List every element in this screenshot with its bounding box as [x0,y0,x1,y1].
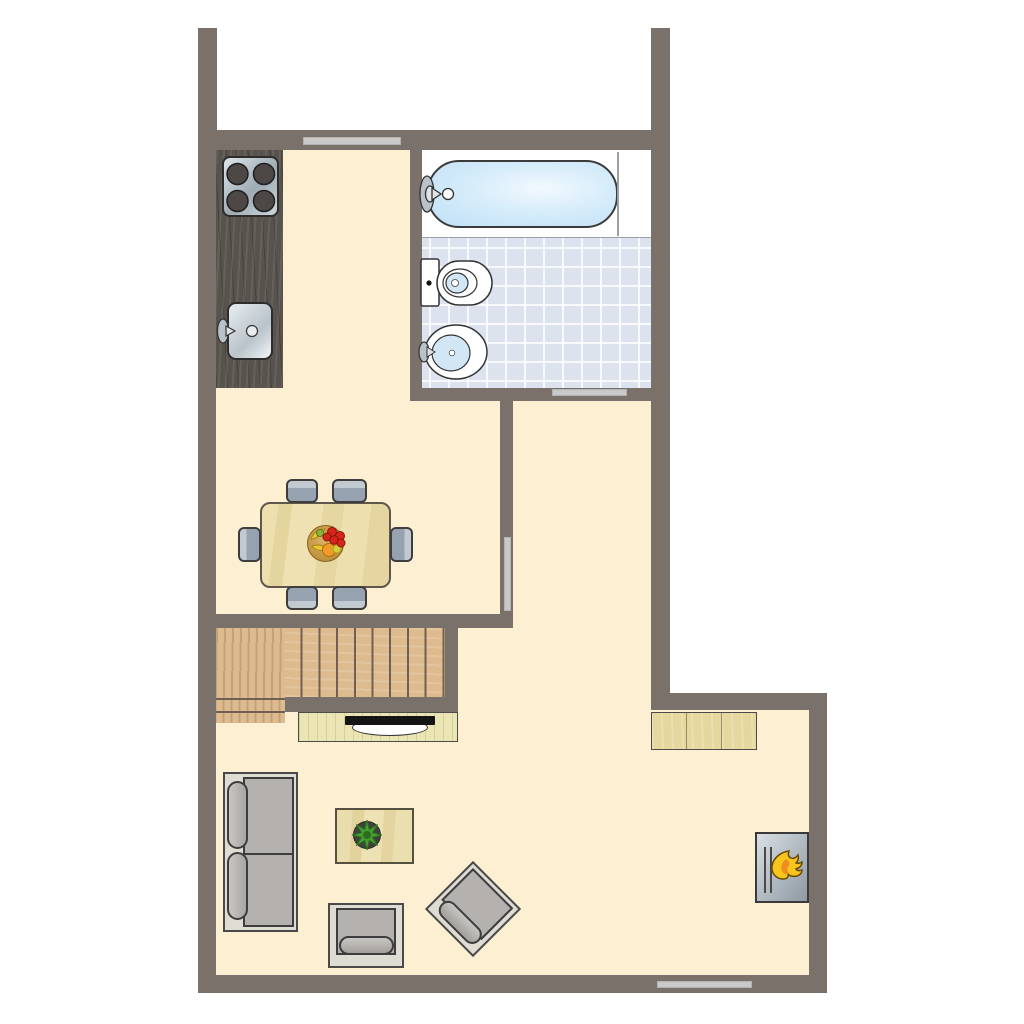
stairs-treads [285,628,445,697]
floor-plan [0,0,1024,1024]
wall-top [198,130,670,150]
sofa-backrest [227,852,248,920]
armchair-backrest [339,936,394,955]
window-top [303,137,401,145]
wall-step [651,693,827,710]
hallway-door-opening [504,537,511,611]
dining-chair [332,479,367,503]
fireplace [755,832,809,903]
wall-under-stairs [285,697,458,712]
wall-entry-stub-left [198,28,217,130]
window-bottom [657,981,752,988]
stove [222,156,279,217]
bathtub-deck-divider [617,152,619,236]
wall-right-upper [651,150,670,710]
sofa-backrest [227,781,248,849]
wall-bathroom-left [410,150,422,400]
coffee-table [335,808,414,864]
dining-chair [238,527,261,562]
dining-chair [390,527,413,562]
tv [345,716,435,725]
fruit-bowl [307,525,344,562]
bathroom-tile-floor [422,237,651,388]
dining-chair [286,479,318,503]
sofa-seat [243,777,294,927]
stairs-landing [216,628,285,723]
bathtub [427,160,618,228]
wall-right-lower [809,693,827,993]
wall-dining-bottom [198,614,513,628]
wall-entry-stub-right [651,28,670,130]
bathroom-door-opening [552,389,627,396]
kitchen-sink [227,302,273,360]
sideboard [651,712,757,750]
dining-chair [286,586,318,610]
dining-chair [332,586,367,610]
wall-left [198,150,216,993]
